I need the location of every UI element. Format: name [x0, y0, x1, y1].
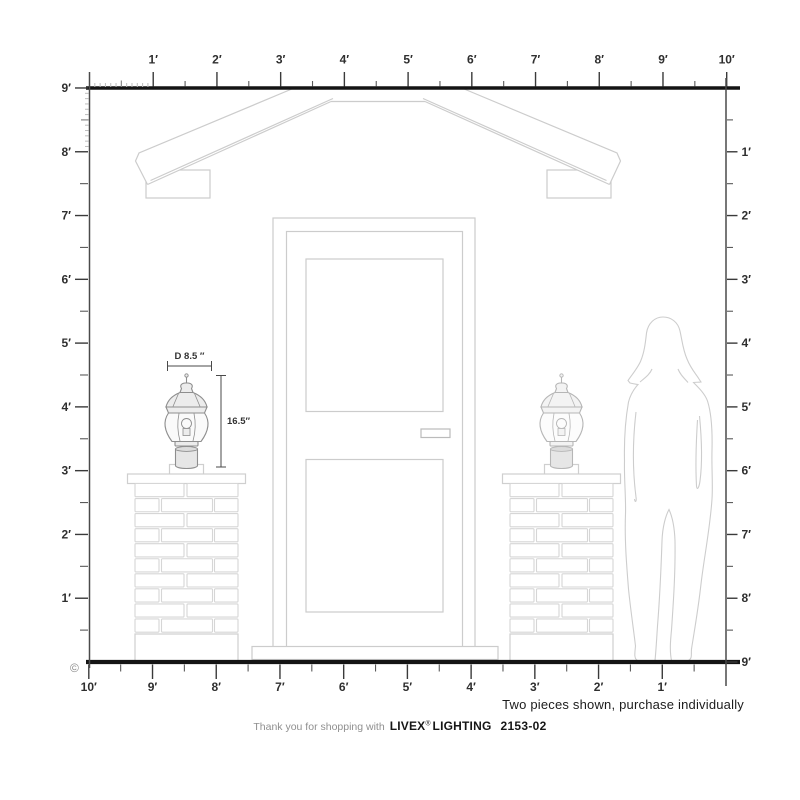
ruler-label: 5′	[61, 336, 71, 350]
post-mount-top	[551, 447, 573, 452]
ruler-label: 7′	[742, 527, 752, 541]
ruler-label: 9′	[61, 81, 71, 95]
brick	[215, 529, 239, 542]
ruler-label: 4′	[466, 680, 476, 694]
brick	[537, 499, 588, 512]
brick	[215, 499, 239, 512]
brick	[187, 574, 238, 587]
finial-urn	[555, 383, 568, 393]
purchase-note: Two pieces shown, purchase individually	[502, 697, 744, 712]
copyright-symbol: ©	[70, 661, 79, 675]
brick	[187, 604, 238, 617]
brand-livex: LIVEX	[390, 719, 426, 733]
ruler-label: 1′	[742, 145, 752, 159]
ruler-label: 3′	[530, 680, 540, 694]
brick	[162, 499, 213, 512]
lantern-dome	[541, 393, 582, 408]
glass-body	[165, 413, 208, 442]
registered-mark: ®	[425, 721, 430, 728]
ruler-label: 2′	[61, 527, 71, 541]
ruler-label: 6′	[742, 464, 752, 478]
ruler-label: 3′	[276, 53, 286, 67]
brick	[590, 529, 614, 542]
ruler-label: 3′	[61, 464, 71, 478]
height-dimension: 16.5″	[216, 376, 250, 468]
ruler-label: 8′	[61, 145, 71, 159]
brick	[590, 619, 614, 632]
brick	[162, 559, 213, 572]
finial-ball	[185, 374, 188, 377]
footer-thanks-text: Thank you for shopping with	[253, 721, 384, 733]
brick	[510, 559, 534, 572]
brick	[135, 604, 184, 617]
ruler-label: 8′	[211, 680, 221, 694]
bottom-band	[175, 442, 198, 447]
ruler-label: 9′	[742, 655, 752, 669]
brick	[562, 544, 613, 557]
brick	[187, 514, 238, 527]
roof-band-right	[425, 89, 621, 185]
ruler-label: 4′	[340, 53, 350, 67]
ruler-label: 10′	[719, 53, 735, 67]
ruler-label: 5′	[403, 680, 413, 694]
brick	[162, 589, 213, 602]
brick	[510, 529, 534, 542]
ruler-label: 8′	[742, 591, 752, 605]
right-brick-pillar	[503, 465, 621, 662]
brick	[135, 544, 184, 557]
glass-body	[540, 413, 583, 442]
brick	[590, 589, 614, 602]
brick	[135, 589, 159, 602]
brick	[510, 619, 534, 632]
brick	[215, 619, 239, 632]
brick	[135, 499, 159, 512]
ruler-label: 6′	[339, 680, 349, 694]
ruler-label: 5′	[742, 400, 752, 414]
brick	[562, 574, 613, 587]
brick	[562, 514, 613, 527]
brick	[187, 484, 238, 497]
right-ruler: 1′2′3′4′5′6′7′8′9′	[726, 78, 751, 686]
woman-silhouette	[624, 317, 712, 661]
brick	[510, 589, 534, 602]
brick	[537, 529, 588, 542]
finial-urn	[180, 383, 193, 393]
lantern-collar	[166, 407, 207, 413]
post-mount	[551, 449, 573, 469]
ruler-label: 3′	[742, 272, 752, 286]
brick	[135, 514, 184, 527]
ruler-label: 4′	[742, 336, 752, 350]
post-mount	[176, 449, 198, 469]
bottom-band	[550, 442, 573, 447]
ruler-label: 4′	[61, 400, 71, 414]
ruler-label: 7′	[275, 680, 285, 694]
pillar-base	[135, 634, 238, 662]
ruler-label: 2′	[594, 680, 604, 694]
ruler-label: 1′	[657, 680, 667, 694]
footer-line: Thank you for shopping withLIVEX®LIGHTIN…	[0, 719, 800, 733]
ruler-label: 7′	[531, 53, 541, 67]
brick	[537, 589, 588, 602]
ruler-label: 6′	[61, 272, 71, 286]
ruler-label: 9′	[658, 53, 668, 67]
scale-diagram-drawing: D 8.5 ″ 16.5″ 1′2′3′4′5′6′7′8′9′10′ 10′9…	[0, 0, 800, 800]
ruler-label: 9′	[148, 680, 158, 694]
brick	[510, 514, 559, 527]
door-step	[252, 647, 498, 660]
left-ruler: 9′8′7′6′5′4′3′2′1′	[61, 72, 89, 668]
ruler-label: 1′	[61, 591, 71, 605]
pillar-base	[510, 634, 613, 662]
pillar-cap	[128, 474, 246, 484]
top-ruler: 1′2′3′4′5′6′7′8′9′10′	[86, 53, 740, 89]
brick	[510, 574, 559, 587]
front-door	[252, 218, 498, 660]
ruler-label: 2′	[742, 209, 752, 223]
brick	[135, 619, 159, 632]
brick	[135, 559, 159, 572]
diameter-label: D 8.5 ″	[175, 351, 205, 362]
brick	[562, 604, 613, 617]
brick	[590, 559, 614, 572]
lantern-dome	[166, 393, 207, 408]
brick	[135, 574, 184, 587]
bulb-socket	[183, 429, 190, 436]
brick	[510, 484, 559, 497]
post-lantern-right	[540, 374, 583, 469]
silhouette-outline	[624, 317, 712, 661]
model-number: 2153-02	[500, 719, 546, 733]
post-lantern-left	[165, 374, 208, 469]
brick	[510, 604, 559, 617]
ruler-label: 7′	[61, 209, 71, 223]
left-brick-pillar	[128, 465, 246, 662]
brick	[162, 529, 213, 542]
brick	[562, 484, 613, 497]
brick	[510, 499, 534, 512]
brick	[215, 559, 239, 572]
product-scale-diagram: D 8.5 ″ 16.5″ 1′2′3′4′5′6′7′8′9′10′ 10′9…	[0, 0, 800, 800]
ruler-label: 10′	[81, 680, 97, 694]
brick	[215, 589, 239, 602]
pillar-cap	[503, 474, 621, 484]
brick	[162, 619, 213, 632]
width-dimension: D 8.5 ″	[168, 351, 212, 371]
brick	[187, 544, 238, 557]
ruler-label: 8′	[594, 53, 604, 67]
brick	[135, 529, 159, 542]
height-label: 16.5″	[227, 416, 250, 427]
door-handle	[421, 429, 450, 438]
lantern-collar	[541, 407, 582, 413]
bulb-socket	[558, 429, 565, 436]
roof-band-left	[136, 89, 332, 185]
brick	[537, 619, 588, 632]
finial-ball	[560, 374, 563, 377]
brand-lighting: LIGHTING	[433, 719, 492, 733]
brick	[135, 484, 184, 497]
brick	[590, 499, 614, 512]
door-inner-frame	[287, 232, 463, 648]
ruler-label: 6′	[467, 53, 477, 67]
brick	[537, 559, 588, 572]
ruler-label: 1′	[148, 53, 158, 67]
post-mount-top	[176, 447, 198, 452]
ruler-label: 5′	[403, 53, 413, 67]
brick	[510, 544, 559, 557]
bottom-ruler: 10′9′8′7′6′5′4′3′2′1′	[81, 662, 740, 694]
ruler-label: 2′	[212, 53, 222, 67]
